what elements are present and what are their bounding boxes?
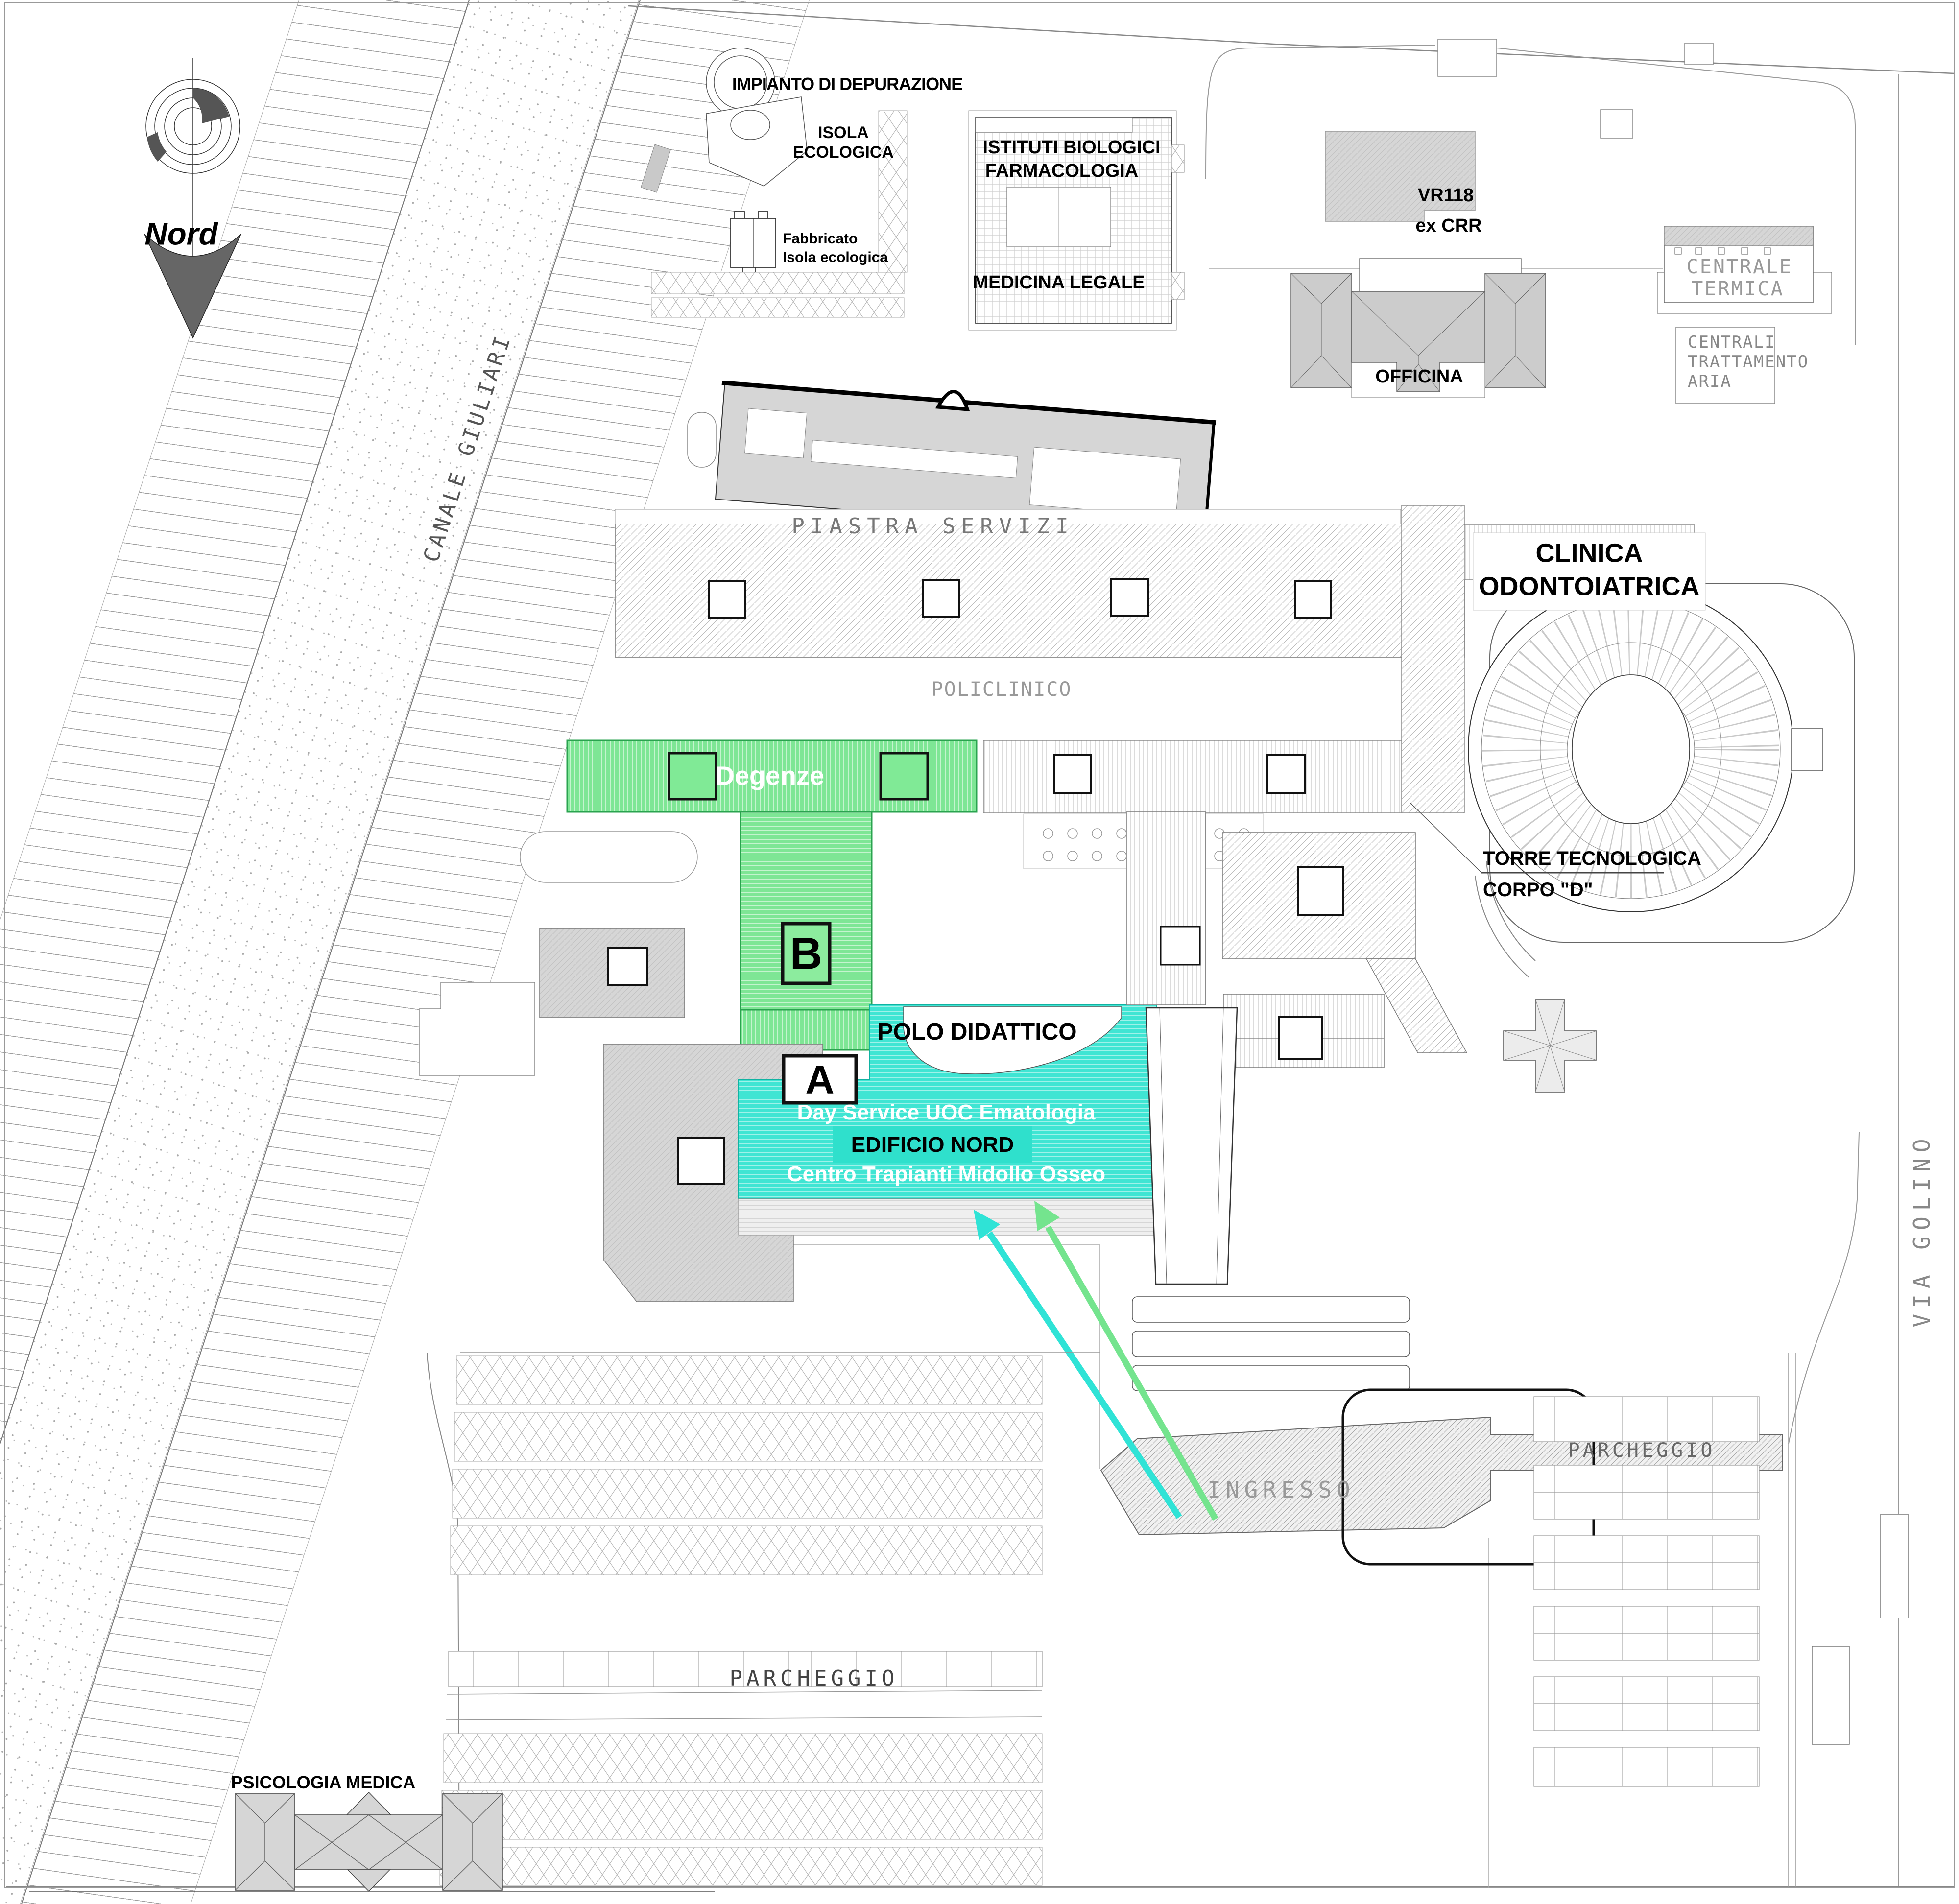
fabbricato-label-1: Fabbricato [783, 231, 858, 247]
psicologia-medica-label: PSICOLOGIA MEDICA [231, 1773, 416, 1792]
ingresso-label: INGRESSO [1207, 1478, 1355, 1501]
degenze-label: Degenze [716, 762, 824, 790]
centrali-aria-label-1: CENTRALI [1688, 334, 1776, 352]
bus-bay-east [1812, 1646, 1849, 1744]
hatch-strip-2 [651, 272, 904, 294]
block-a-label: A [805, 1059, 834, 1101]
tapered-tower-building [1146, 1008, 1237, 1284]
campus-site-plan: Nord IMPIANTO DI DEPURAZIONE ISOLA ECOLO… [0, 0, 1959, 1904]
parking-southwest [440, 1353, 1100, 1885]
hatch-strip-3 [651, 298, 904, 317]
officina-label: OFFICINA [1375, 367, 1463, 387]
clinica-odontoiatrica-label-2: ODONTOIATRICA [1479, 573, 1700, 601]
medicina-legale-label: MEDICINA LEGALE [973, 273, 1145, 293]
stadium-outline-building [520, 832, 697, 882]
impianto-depurazione-label: IMPIANTO DI DEPURAZIONE [732, 75, 962, 94]
day-service-label: Day Service UOC Ematologia [797, 1101, 1096, 1124]
site-boundary-north [628, 6, 1954, 73]
centrale-termica-label-1: CENTRALE [1687, 257, 1793, 277]
fabbricato-isola-ecologica-building [731, 212, 776, 275]
hatch-strip-1 [879, 111, 907, 272]
centrale-termica-label-2: TERMICA [1691, 279, 1784, 299]
centrali-aria-label-3: ARIA [1688, 373, 1732, 391]
road-east-connector [1789, 1132, 1859, 1444]
corpo-d-label: CORPO "D" [1483, 880, 1593, 900]
istituti-biologici-label: ISTITUTI BIOLOGICI [982, 138, 1160, 158]
small-gray-structure [641, 144, 671, 192]
torre-tecnologica-label: TORRE TECNOLOGICA [1483, 848, 1701, 869]
policlinico-label: POLICLINICO [932, 679, 1072, 700]
west-outline-building [419, 982, 535, 1075]
oval-structure [688, 412, 716, 467]
torre-leader-line [1410, 803, 1481, 873]
parcheggio-southeast-label: PARCHEGGIO [1568, 1440, 1716, 1461]
comb-bars-structure [1132, 1297, 1410, 1391]
corpo-d-cross-building [1504, 999, 1597, 1092]
small-utility-structure [1601, 110, 1633, 138]
isola-ecologica-label-1: ISOLA [818, 124, 869, 142]
vr118-building [1325, 131, 1475, 221]
centro-trapianti-label: Centro Trapianti Midollo Osseo [787, 1163, 1105, 1186]
bus-bay-via-golino [1881, 1514, 1908, 1618]
vr118-label: VR118 [1418, 186, 1474, 206]
edificio-nord-label: EDIFICIO NORD [851, 1134, 1014, 1156]
fabbricato-label-2: Isola ecologica [783, 250, 888, 265]
block-b-label: B [790, 930, 822, 978]
via-golino-label: VIA GOLINO [1910, 1133, 1934, 1328]
compass-icon [144, 58, 241, 338]
isola-ecologica-label-2: ECOLOGICA [793, 144, 894, 162]
north-fence-gate [1685, 43, 1713, 65]
clinica-odontoiatrica-label-1: CLINICA [1536, 540, 1643, 568]
farmacologia-label: FARMACOLOGIA [985, 162, 1138, 181]
piastra-servizi-label: PIASTRA SERVIZI [791, 515, 1074, 538]
parcheggio-southwest-label: PARCHEGGIO [730, 1667, 899, 1690]
centrali-aria-label-2: TRATTAMENTO [1688, 354, 1809, 371]
polo-didattico-label: POLO DIDATTICO [877, 1020, 1076, 1045]
gray-wing-building [540, 928, 685, 1018]
north-gate-structure [1438, 39, 1497, 76]
ex-crr-label: ex CRR [1415, 216, 1481, 236]
impianto-depurazione-plant [706, 48, 807, 186]
north-label: Nord [144, 217, 217, 250]
